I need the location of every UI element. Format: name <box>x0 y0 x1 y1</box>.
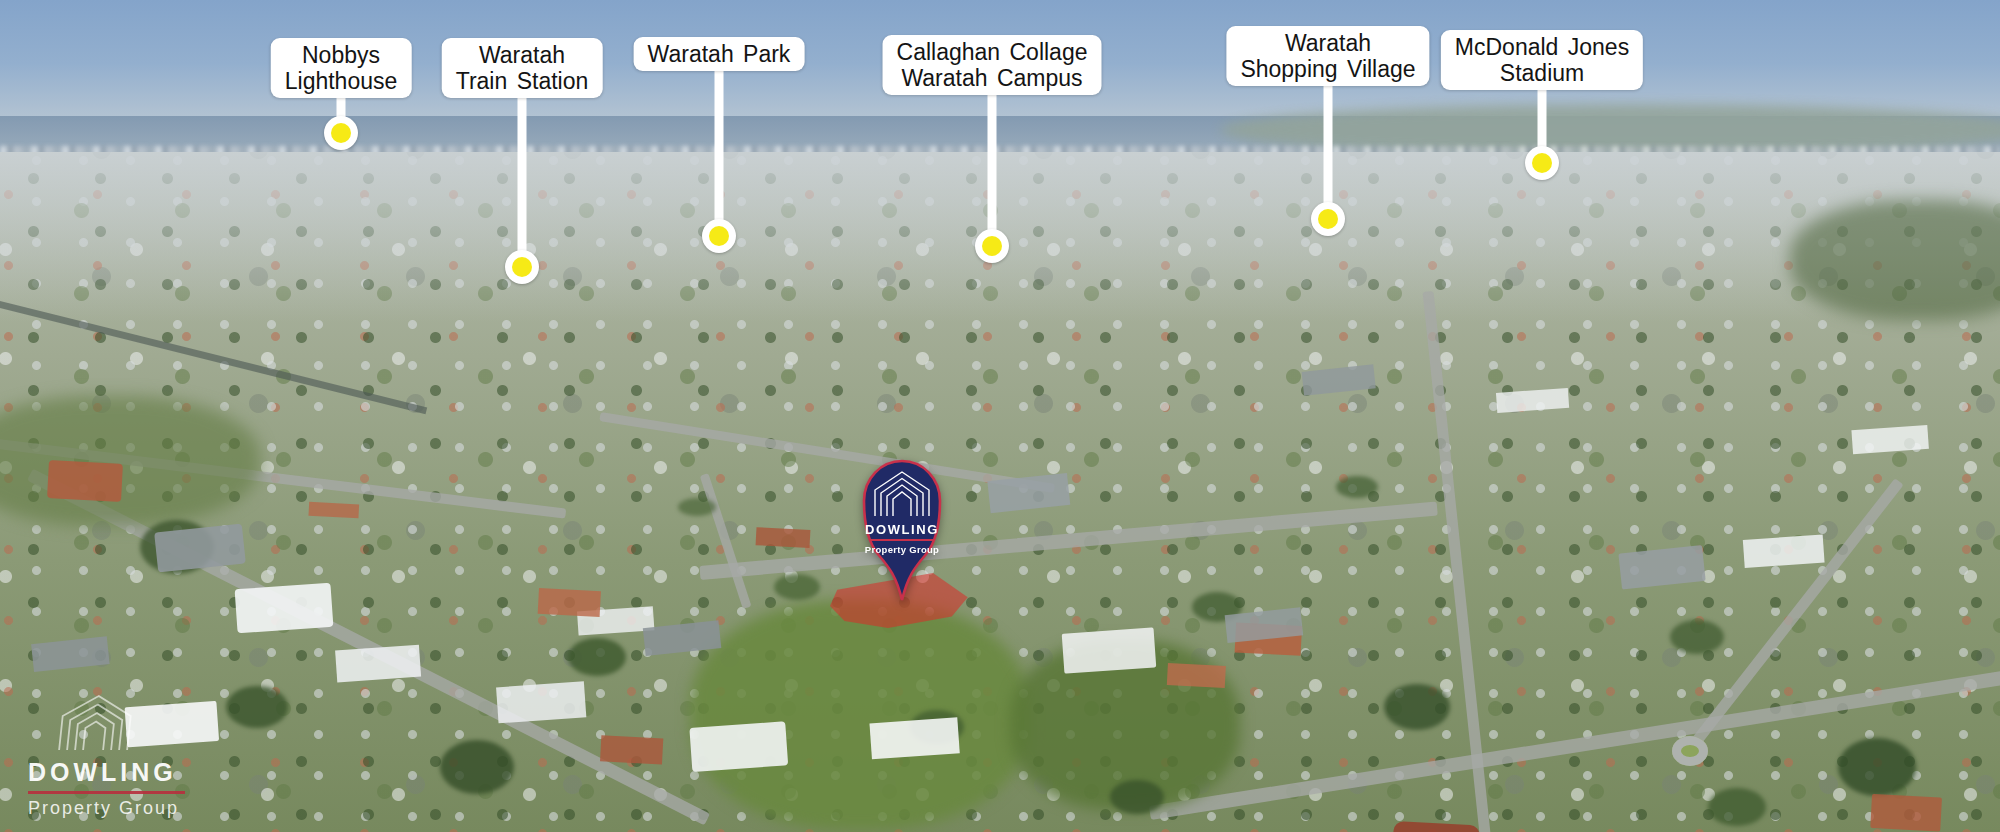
label-line: Lighthouse <box>285 68 398 94</box>
aerial-map-scene: DOWLING Property Group Nobbys Lighthouse… <box>0 0 2000 832</box>
callout-connector-line <box>715 67 724 241</box>
yellow-location-dot <box>1525 146 1559 180</box>
pin-sub-text: Property Group <box>865 544 939 555</box>
yellow-location-dot <box>1311 202 1345 236</box>
dowling-watermark: DOWLING Property Group <box>28 694 198 819</box>
dowling-property-pin: DOWLING Property Group <box>860 458 944 602</box>
label-line: McDonald Jones <box>1455 34 1629 60</box>
watermark-arch-icon <box>53 694 139 750</box>
watermark-brand-text: DOWLING <box>28 758 198 787</box>
park-field <box>690 600 1030 830</box>
label-line: Stadium <box>1455 60 1629 86</box>
label-line: Waratah <box>1240 30 1415 56</box>
callout-label: Waratah Train Station <box>442 38 603 98</box>
park-field <box>1010 640 1240 810</box>
yellow-location-dot <box>505 250 539 284</box>
yellow-location-dot <box>975 229 1009 263</box>
watermark-sub-text: Property Group <box>28 798 198 819</box>
label-line: Shopping Village <box>1240 56 1415 82</box>
label-line: Callaghan Collage <box>897 39 1088 65</box>
yellow-location-dot <box>324 116 358 150</box>
pin-brand-underline <box>869 539 935 541</box>
label-line: Waratah <box>456 42 589 68</box>
tree-cluster <box>1790 200 2000 320</box>
pin-brand-text: DOWLING <box>865 522 939 537</box>
roundabout <box>1672 736 1708 766</box>
yellow-location-dot <box>702 219 736 253</box>
callout-label: McDonald Jones Stadium <box>1441 30 1643 90</box>
callout-label: Waratah Park <box>634 37 805 71</box>
callout-connector-line <box>518 94 527 272</box>
label-line: Nobbys <box>285 42 398 68</box>
light-rooftops <box>235 583 334 634</box>
callout-connector-line <box>988 91 997 251</box>
label-line: Waratah Campus <box>897 65 1088 91</box>
callout-label: Waratah Shopping Village <box>1226 26 1429 86</box>
park-field <box>0 396 260 526</box>
label-line: Train Station <box>456 68 589 94</box>
watermark-red-rule <box>28 791 185 794</box>
callout-label: Nobbys Lighthouse <box>271 38 412 98</box>
pin-graphic: DOWLING Property Group <box>860 458 944 602</box>
callout-label: Callaghan Collage Waratah Campus <box>883 35 1102 95</box>
terracotta-rooftops <box>47 460 123 502</box>
label-line: Waratah Park <box>648 41 791 67</box>
